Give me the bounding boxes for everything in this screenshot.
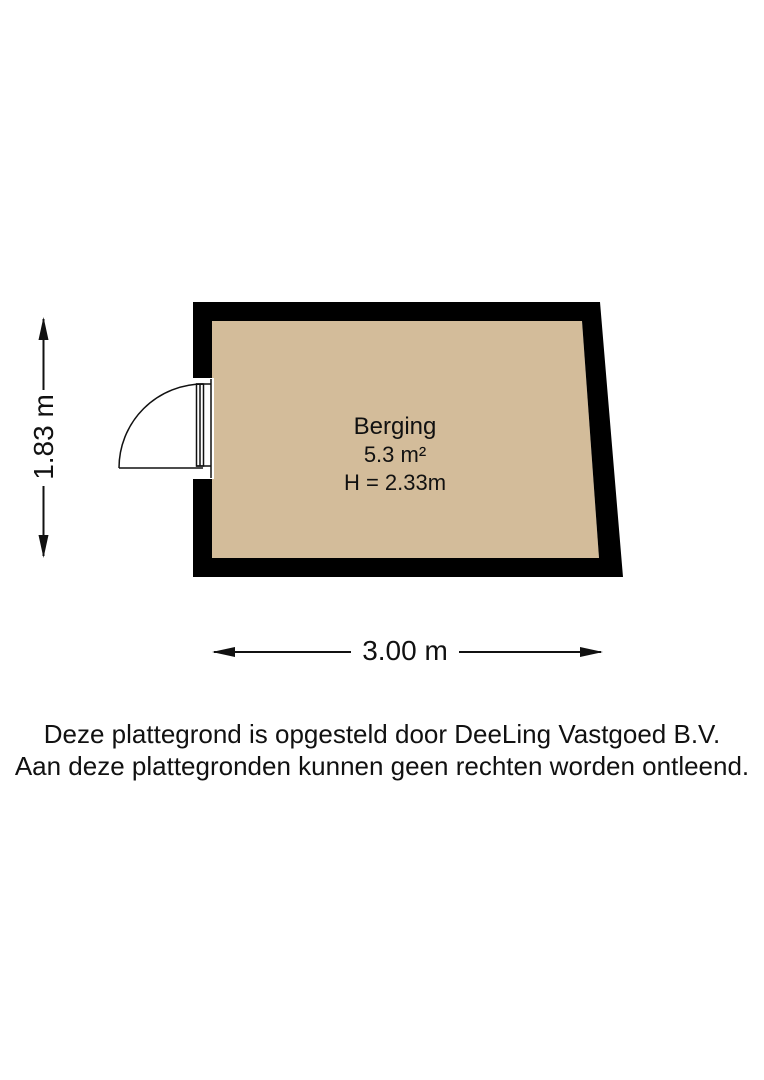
- arrow-left-icon: [212, 647, 235, 657]
- door-icon: [119, 379, 211, 478]
- room-area-label: 5.3 m²: [275, 441, 515, 469]
- floorplan-canvas: [0, 0, 764, 1080]
- room-label-block: Berging 5.3 m² H = 2.33m: [275, 412, 515, 497]
- room-ceiling-height-label: H = 2.33m: [275, 469, 515, 497]
- footer-disclaimer-line1: Deze plattegrond is opgesteld door DeeLi…: [0, 718, 764, 750]
- arrow-down-icon: [39, 535, 49, 558]
- height-dimension-label: 1.83 m: [28, 394, 60, 480]
- arrow-right-icon: [580, 647, 603, 657]
- arrow-up-icon: [39, 317, 49, 340]
- width-dimension-label: 3.00 m: [362, 635, 448, 667]
- footer-disclaimer-line2: Aan deze plattegronden kunnen geen recht…: [0, 750, 764, 782]
- room-name-label: Berging: [275, 412, 515, 441]
- floorplan-page: Berging 5.3 m² H = 2.33m 1.83 m 3.00 m D…: [0, 0, 764, 1080]
- footer-disclaimer: Deze plattegrond is opgesteld door DeeLi…: [0, 718, 764, 782]
